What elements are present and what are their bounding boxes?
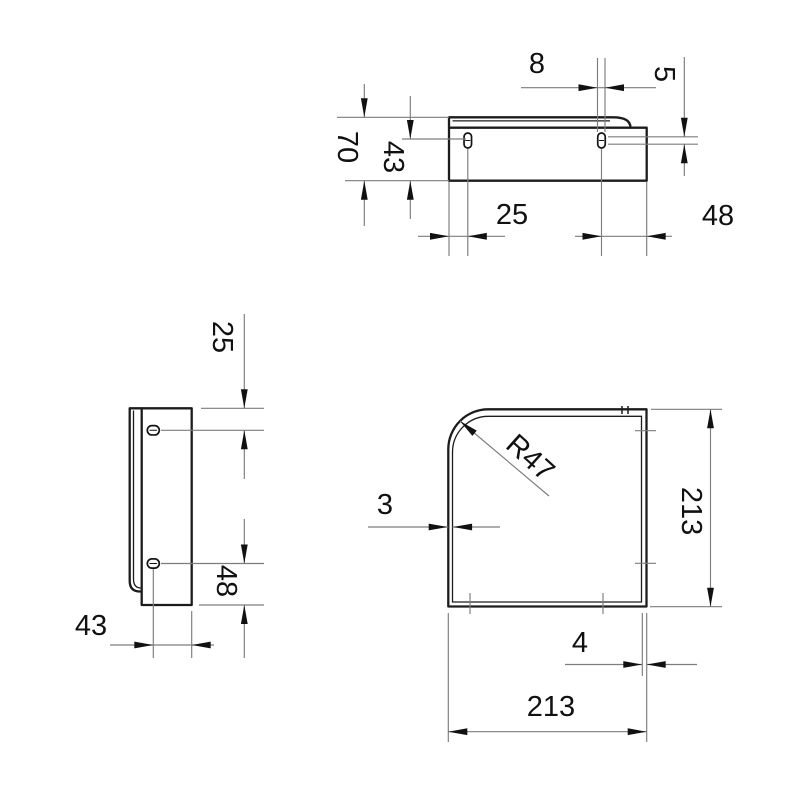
dim-text-4: 4 <box>572 627 588 659</box>
dim-plan-edge-gap: 4 <box>565 613 697 742</box>
technical-drawing: 70 43 8 5 25 <box>0 0 800 800</box>
side-view-body <box>142 408 192 605</box>
side-view-slot-dashes <box>150 430 158 563</box>
side-view-lip <box>130 408 142 591</box>
dim-text-213-bottom: 213 <box>527 691 575 723</box>
front-view-lip <box>449 117 631 127</box>
dim-text-25-front: 25 <box>496 199 528 231</box>
dim-front-slot-to-edge: 48 <box>575 149 734 256</box>
dim-text-25-side: 25 <box>206 321 238 353</box>
dim-side-top-to-slot: 25 <box>161 314 264 479</box>
dim-plan-thickness: 3 <box>368 489 500 530</box>
plan-view-slot-position-ticks <box>470 431 656 614</box>
dim-plan-depth: 213 <box>650 409 722 606</box>
dim-text-3: 3 <box>377 489 393 521</box>
dim-front-slot-width: 8 <box>521 48 656 132</box>
side-view-lip-inner-line <box>134 411 142 589</box>
plan-view-plate-inner <box>453 416 642 602</box>
drawing-sheet: 70 43 8 5 25 <box>0 0 800 800</box>
dim-front-slot-length: 5 <box>608 57 698 176</box>
dim-text-r47: R47 <box>500 428 561 487</box>
dim-front-slot-to-bottom: 43 <box>377 96 466 219</box>
dim-front-edge-to-slot: 25 <box>418 149 528 256</box>
side-view: 25 48 43 <box>75 314 264 658</box>
dim-text-70: 70 <box>331 131 363 163</box>
dim-text-48-side: 48 <box>210 565 242 597</box>
dim-side-slot-to-bottom: 48 <box>161 519 264 658</box>
dim-plan-width: 213 <box>448 613 646 742</box>
dim-text-8: 8 <box>529 48 545 80</box>
plan-view-plate-outer <box>448 409 646 606</box>
dim-plan-corner-radius: R47 <box>458 418 561 496</box>
dim-text-43-side: 43 <box>75 610 107 642</box>
front-view-body <box>449 128 647 181</box>
dim-side-slot-to-front: 43 <box>75 569 214 658</box>
dim-text-43-front: 43 <box>377 141 409 173</box>
dim-text-48-front: 48 <box>702 200 734 232</box>
front-view: 70 43 8 5 25 <box>331 48 734 256</box>
plan-view: R47 3 213 4 213 <box>368 406 722 742</box>
dim-text-213-right: 213 <box>675 487 707 535</box>
dim-text-5: 5 <box>648 66 680 82</box>
